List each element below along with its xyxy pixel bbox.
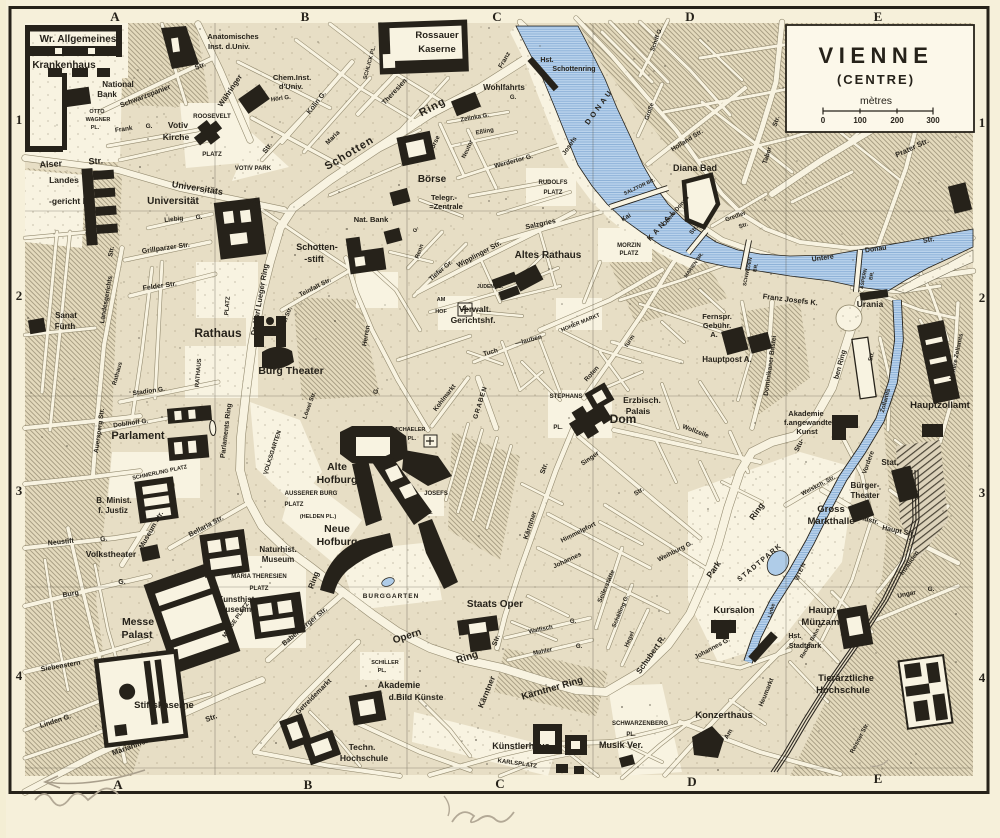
- svg-text:Kursalon: Kursalon: [713, 605, 754, 616]
- svg-text:JOSEFS: JOSEFS: [424, 491, 448, 497]
- svg-text:4: 4: [16, 668, 23, 683]
- svg-text:B: B: [301, 9, 310, 24]
- svg-text:BURGGARTEN: BURGGARTEN: [363, 593, 420, 600]
- svg-text:Fürth: Fürth: [55, 322, 76, 331]
- svg-text:PLATZ: PLATZ: [250, 586, 269, 592]
- svg-text:Akademie: Akademie: [788, 409, 823, 418]
- svg-text:Haupt: Haupt: [809, 605, 837, 616]
- svg-text:Kunsthist.: Kunsthist.: [217, 595, 256, 604]
- svg-text:Hauptzollamt: Hauptzollamt: [910, 400, 970, 411]
- svg-text:RUDOLFS: RUDOLFS: [539, 180, 568, 186]
- svg-text:WAGNER: WAGNER: [86, 117, 111, 123]
- svg-text:Votiv: Votiv: [168, 120, 188, 130]
- svg-text:Markthalle: Markthalle: [808, 516, 855, 527]
- svg-text:Str.: Str.: [88, 156, 103, 167]
- svg-text:Sanat: Sanat: [55, 311, 77, 320]
- svg-text:A: A: [113, 777, 123, 792]
- svg-text:Musik Ver.: Musik Ver.: [599, 740, 643, 750]
- svg-text:Börse: Börse: [418, 174, 447, 185]
- svg-text:Tierärztliche: Tierärztliche: [818, 673, 874, 684]
- svg-text:G.: G.: [196, 214, 203, 221]
- svg-text:Fernspr.: Fernspr.: [702, 312, 732, 321]
- svg-text:Inst. d.Univ.: Inst. d.Univ.: [208, 42, 250, 51]
- svg-text:ROOSEVELT: ROOSEVELT: [193, 113, 231, 120]
- svg-text:Telegr.-: Telegr.-: [431, 193, 458, 202]
- svg-text:PLATZ: PLATZ: [620, 251, 639, 257]
- svg-text:PL.: PL.: [423, 510, 433, 516]
- svg-text:Kaserne: Kaserne: [418, 44, 456, 55]
- svg-text:Staats Oper: Staats Oper: [467, 599, 523, 610]
- svg-text:Universität: Universität: [147, 196, 199, 207]
- svg-text:Kirche: Kirche: [163, 132, 190, 142]
- svg-text:f. Justiz: f. Justiz: [98, 506, 128, 515]
- svg-text:Gross: Gross: [817, 504, 844, 515]
- svg-text:3: 3: [16, 483, 23, 498]
- svg-text:G.: G.: [928, 586, 935, 593]
- svg-text:(CENTRE): (CENTRE): [837, 72, 915, 87]
- svg-text:MICHAELER: MICHAELER: [393, 427, 426, 433]
- svg-text:PL.: PL.: [91, 125, 100, 131]
- svg-text:PL.: PL.: [378, 668, 387, 674]
- svg-text:Rossauer: Rossauer: [415, 30, 459, 41]
- svg-text:d.Bild Künste: d.Bild Künste: [389, 692, 444, 702]
- svg-text:Theater: Theater: [851, 491, 880, 500]
- svg-text:Wohlfahrts: Wohlfahrts: [483, 83, 525, 92]
- svg-text:Alte: Alte: [327, 461, 347, 473]
- svg-text:Erzbisch.: Erzbisch.: [623, 395, 661, 405]
- svg-text:1: 1: [16, 112, 23, 127]
- svg-text:Palast: Palast: [122, 629, 153, 641]
- svg-text:f.angewandte: f.angewandte: [784, 418, 832, 427]
- svg-text:MARIA THERESIEN: MARIA THERESIEN: [231, 574, 286, 580]
- svg-text:200: 200: [890, 116, 904, 125]
- svg-text:3: 3: [979, 485, 986, 500]
- svg-text:Konzerthaus: Konzerthaus: [695, 710, 753, 721]
- svg-text:Naturhist.: Naturhist.: [259, 545, 296, 554]
- svg-text:Verwalt.: Verwalt.: [459, 304, 491, 314]
- svg-text:Hofburg: Hofburg: [317, 474, 358, 486]
- svg-text:Alser: Alser: [39, 158, 63, 170]
- svg-text:Stat.: Stat.: [881, 458, 898, 467]
- svg-text:A.: A.: [710, 330, 718, 339]
- svg-text:HOF: HOF: [435, 309, 447, 315]
- svg-text:=Zentrale: =Zentrale: [429, 202, 463, 211]
- svg-text:G.: G.: [100, 536, 108, 544]
- svg-text:E: E: [874, 9, 883, 24]
- svg-text:Hofburg: Hofburg: [317, 536, 358, 548]
- svg-text:300: 300: [926, 116, 940, 125]
- svg-text:Nat. Bank: Nat. Bank: [354, 215, 389, 224]
- svg-text:d'Univ.: d'Univ.: [279, 82, 303, 91]
- svg-text:Rathaus: Rathaus: [194, 326, 242, 340]
- svg-text:2: 2: [16, 288, 23, 303]
- svg-text:0: 0: [821, 116, 826, 125]
- svg-text:PLATZ: PLATZ: [202, 151, 222, 158]
- svg-text:Krankenhaus: Krankenhaus: [32, 60, 96, 71]
- svg-text:Urania: Urania: [857, 299, 884, 309]
- svg-text:Neue: Neue: [324, 523, 350, 535]
- svg-text:G.: G.: [118, 579, 125, 586]
- svg-text:Museum: Museum: [262, 555, 294, 564]
- svg-text:Gerichtshf.: Gerichtshf.: [451, 315, 496, 325]
- svg-text:Anatomisches: Anatomisches: [207, 32, 258, 41]
- svg-text:Akademie: Akademie: [378, 680, 421, 690]
- svg-text:-stift: -stift: [304, 254, 324, 264]
- svg-text:Landes: Landes: [49, 175, 79, 185]
- svg-text:Messe: Messe: [122, 616, 154, 628]
- svg-text:Hochschule: Hochschule: [340, 753, 388, 763]
- svg-text:Bank: Bank: [97, 90, 117, 99]
- svg-text:PLATZ: PLATZ: [285, 502, 304, 508]
- svg-text:Schotten-: Schotten-: [296, 242, 338, 252]
- svg-text:G.: G.: [576, 644, 583, 650]
- svg-text:D: D: [687, 774, 696, 789]
- svg-text:MORZIN: MORZIN: [617, 243, 641, 249]
- svg-text:Hauptpost A.: Hauptpost A.: [702, 355, 751, 364]
- svg-text:JUDEN PL.: JUDEN PL.: [477, 284, 504, 290]
- svg-text:OTTO: OTTO: [89, 109, 105, 115]
- svg-text:Gebühr.: Gebühr.: [703, 321, 731, 330]
- svg-text:2: 2: [979, 290, 986, 305]
- svg-text:G.: G.: [146, 123, 153, 130]
- svg-text:Parlament: Parlament: [111, 430, 165, 442]
- svg-text:-gericht I: -gericht I: [49, 196, 85, 206]
- svg-text:VIENNE: VIENNE: [819, 43, 934, 68]
- svg-text:PL.: PL.: [626, 732, 636, 738]
- svg-text:National: National: [102, 80, 134, 89]
- svg-text:C: C: [495, 776, 504, 791]
- svg-text:SCHWARZENBERG: SCHWARZENBERG: [612, 721, 668, 727]
- svg-text:E: E: [874, 771, 883, 786]
- svg-text:mètres: mètres: [860, 95, 892, 107]
- svg-text:PLATZ: PLATZ: [544, 190, 563, 196]
- svg-text:Künstlerhaus: Künstlerhaus: [492, 741, 550, 751]
- svg-text:D: D: [685, 9, 694, 24]
- svg-text:G.: G.: [570, 619, 577, 625]
- svg-text:B. Minist.: B. Minist.: [96, 496, 132, 505]
- svg-text:Burg Theater: Burg Theater: [258, 365, 323, 377]
- svg-text:A: A: [110, 9, 120, 24]
- svg-text:4: 4: [979, 670, 986, 685]
- svg-text:VOTIV PARK: VOTIV PARK: [235, 166, 272, 172]
- svg-text:STEPHANS: STEPHANS: [550, 394, 583, 400]
- svg-text:Diana Bad: Diana Bad: [673, 163, 717, 173]
- svg-text:PL.: PL.: [408, 436, 417, 442]
- svg-text:Schottenring: Schottenring: [552, 66, 595, 73]
- svg-text:PL.: PL.: [553, 425, 563, 431]
- svg-text:Hochschule: Hochschule: [816, 685, 870, 696]
- svg-text:B: B: [304, 777, 313, 792]
- svg-text:Chem.Inst.: Chem.Inst.: [273, 73, 311, 82]
- svg-text:Palais: Palais: [626, 406, 651, 416]
- svg-text:G.: G.: [372, 387, 380, 395]
- svg-text:AM: AM: [437, 297, 446, 303]
- svg-text:AUSSERER BURG: AUSSERER BURG: [285, 491, 338, 497]
- svg-text:G.: G.: [510, 95, 517, 101]
- svg-text:Altes Rathaus: Altes Rathaus: [515, 250, 582, 261]
- svg-text:Volkstheater: Volkstheater: [86, 549, 137, 559]
- svg-text:Techn.: Techn.: [349, 742, 376, 752]
- svg-text:C: C: [492, 9, 501, 24]
- svg-text:1: 1: [979, 115, 986, 130]
- svg-text:SCHILLER: SCHILLER: [371, 660, 399, 666]
- svg-text:100: 100: [853, 116, 867, 125]
- svg-text:Stiftskaserne: Stiftskaserne: [134, 700, 194, 711]
- svg-text:Hst.: Hst.: [540, 57, 553, 64]
- svg-text:Kunst: Kunst: [796, 427, 818, 436]
- svg-text:Wr. Allgemeines: Wr. Allgemeines: [40, 34, 117, 45]
- svg-text:Hst.: Hst.: [788, 633, 801, 640]
- svg-text:Bürger-: Bürger-: [851, 481, 880, 490]
- svg-text:(HELDEN PL.): (HELDEN PL.): [300, 514, 337, 520]
